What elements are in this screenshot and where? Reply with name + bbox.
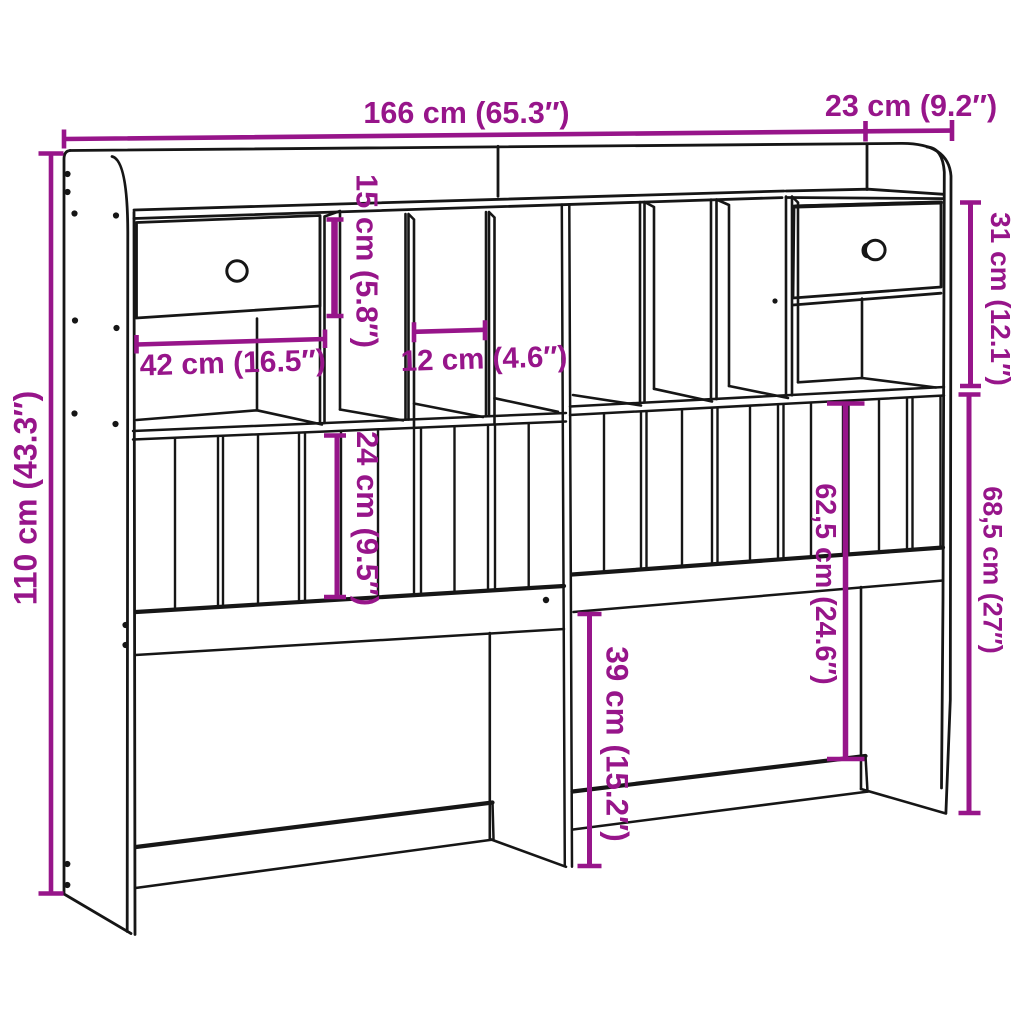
svg-text:42 cm (16.5″): 42 cm (16.5″)	[139, 344, 326, 383]
svg-text:39 cm (15.2″): 39 cm (15.2″)	[600, 646, 636, 841]
svg-text:31 cm (12.1″): 31 cm (12.1″)	[985, 212, 1016, 386]
svg-text:68,5 cm (27″): 68,5 cm (27″)	[978, 486, 1008, 654]
svg-text:15 cm (5.8″): 15 cm (5.8″)	[350, 174, 385, 348]
svg-text:110 cm (43.3″): 110 cm (43.3″)	[8, 391, 44, 606]
svg-text:62,5 cm (24.6″): 62,5 cm (24.6″)	[809, 483, 841, 684]
svg-text:24 cm (9.5″): 24 cm (9.5″)	[350, 431, 385, 606]
svg-text:23 cm (9.2″): 23 cm (9.2″)	[825, 89, 997, 123]
svg-text:166 cm (65.3″): 166 cm (65.3″)	[363, 96, 569, 130]
svg-text:12 cm (4.6″): 12 cm (4.6″)	[400, 340, 568, 378]
